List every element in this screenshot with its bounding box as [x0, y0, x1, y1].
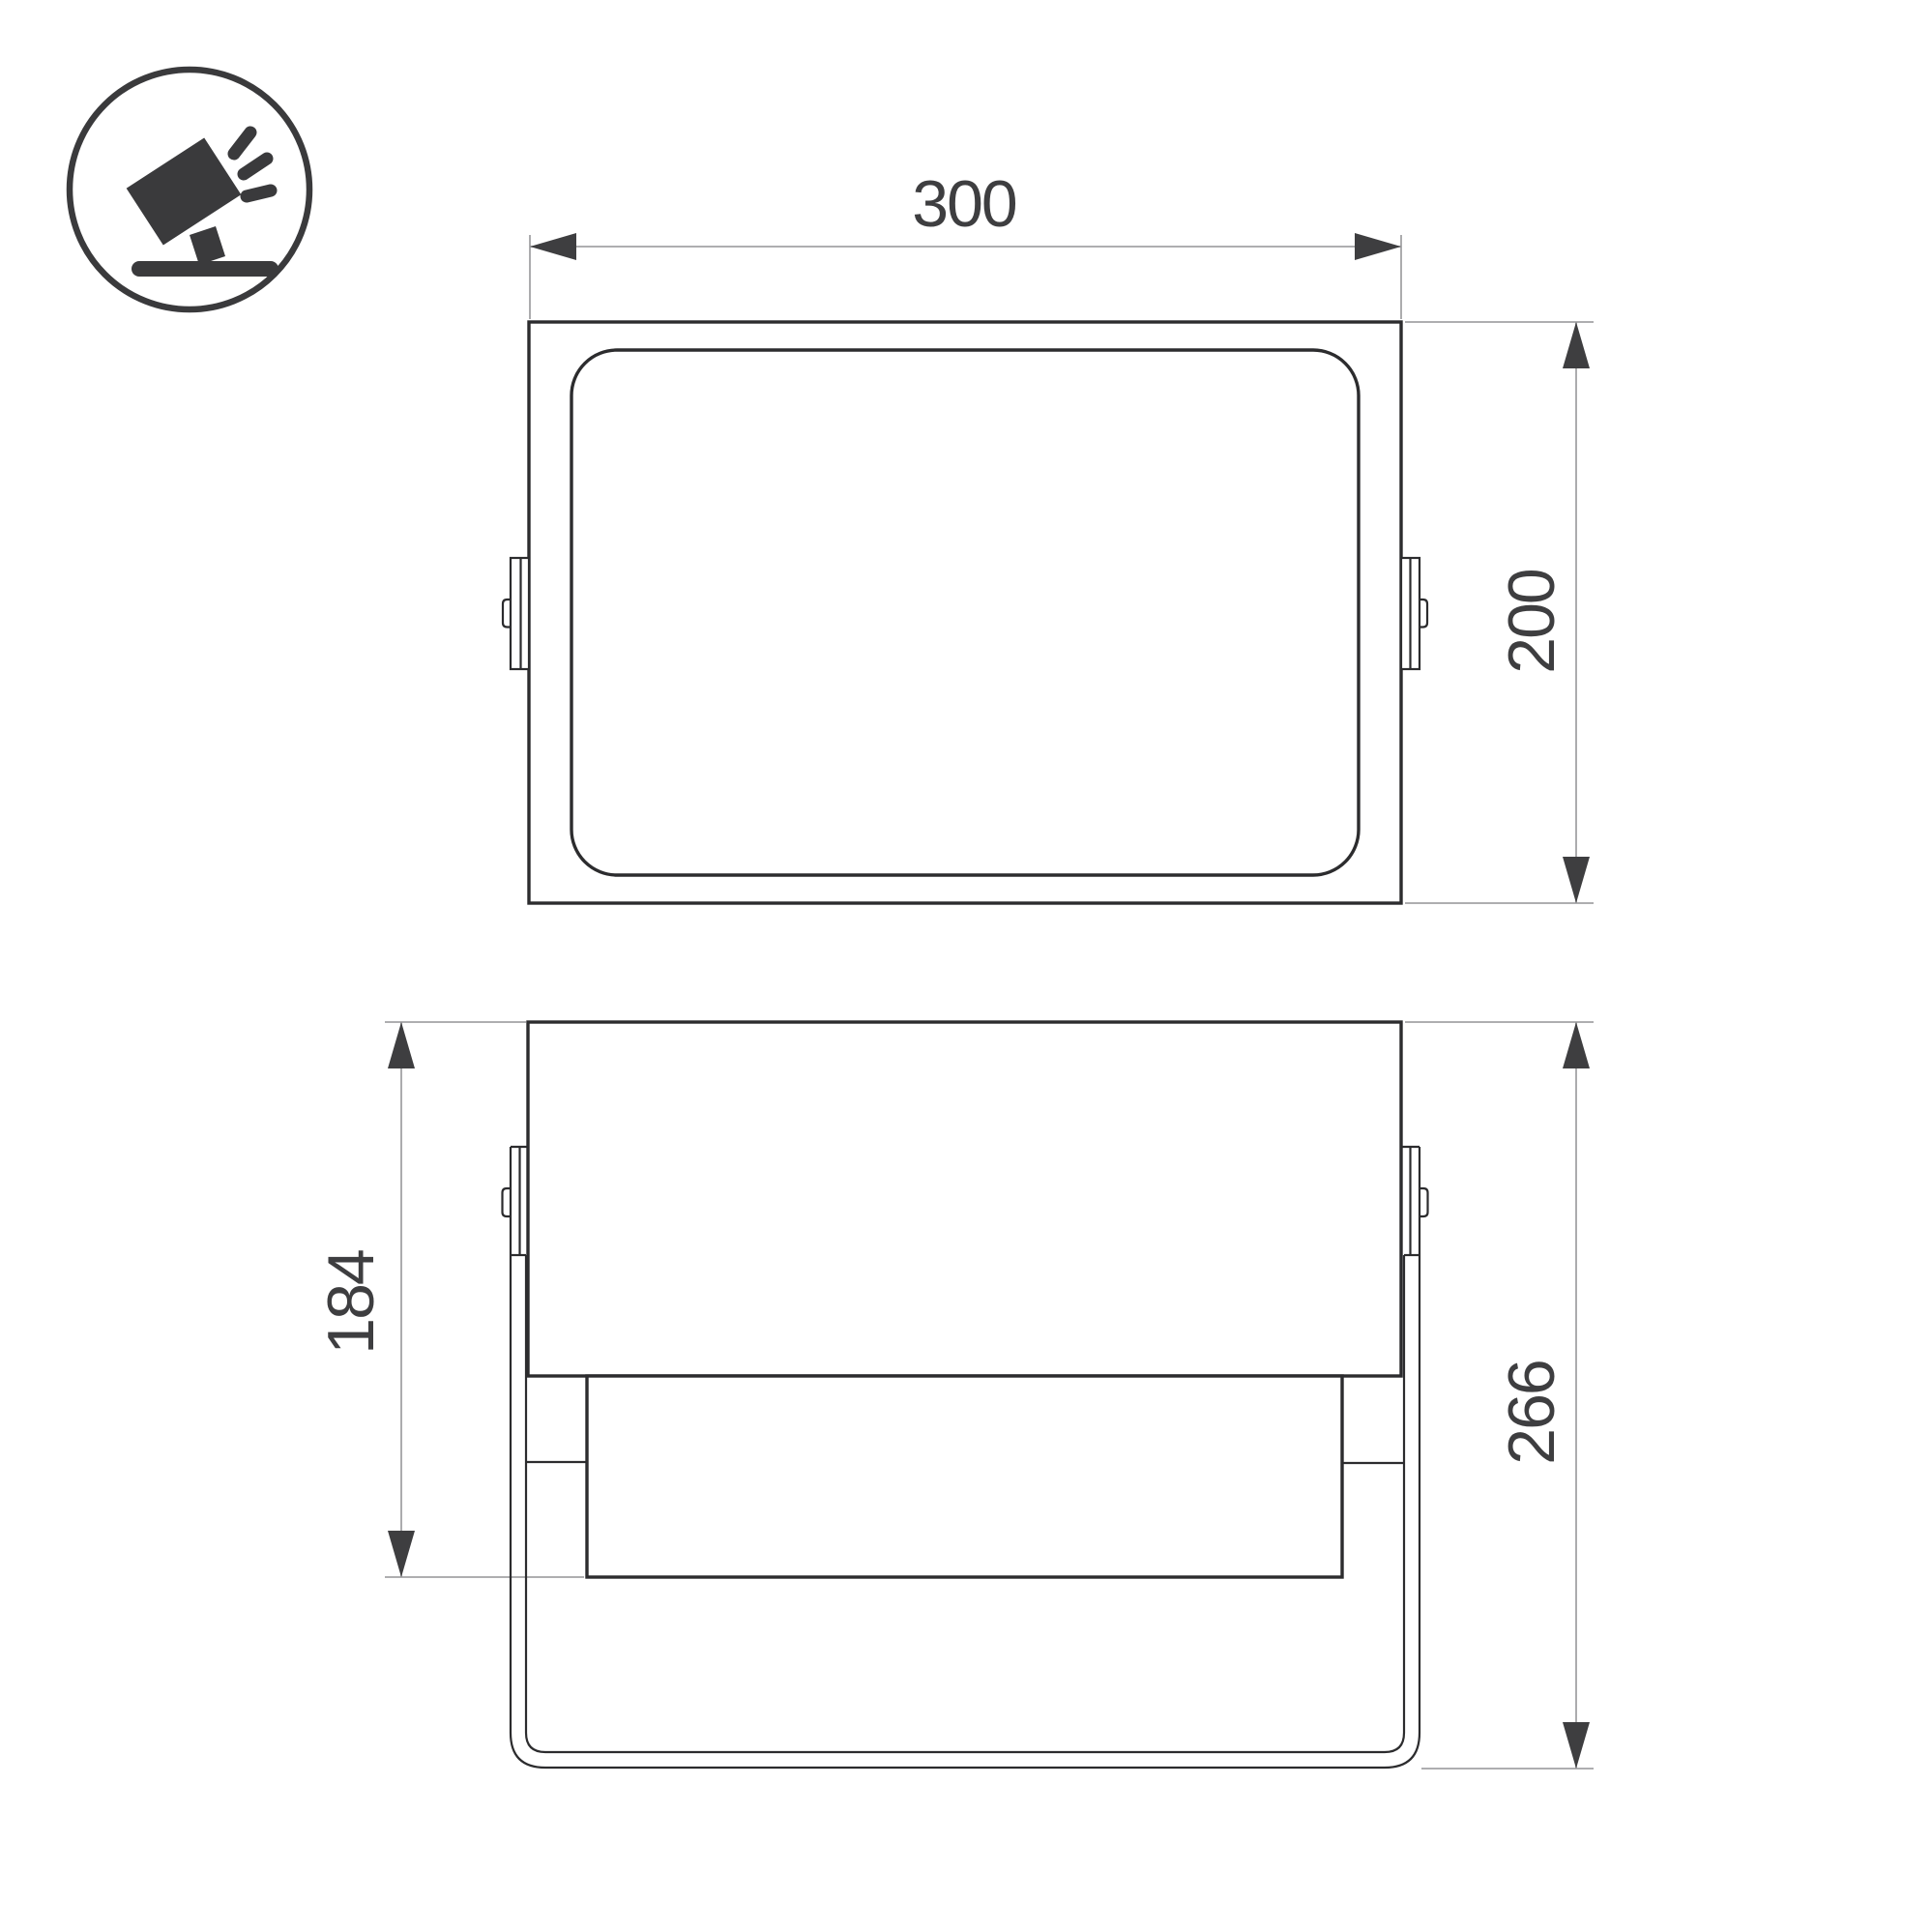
arrowhead-down — [388, 1531, 415, 1577]
side-right-bracket — [1402, 1147, 1428, 1255]
icon-ray-top — [234, 132, 250, 154]
side-lower-section — [587, 1376, 1342, 1577]
arrowhead-up — [388, 1022, 415, 1068]
floodlight-icon — [70, 70, 309, 309]
front-view: 300 200 — [503, 167, 1594, 903]
pivot-knob — [1420, 1188, 1428, 1216]
side-body-outline — [528, 1022, 1401, 1376]
front-housing-outline — [529, 322, 1401, 903]
side-left-bracket — [503, 1147, 529, 1255]
drawing-canvas: 300 200 — [0, 0, 1932, 1931]
front-left-bracket — [503, 558, 529, 669]
icon-lamp-head — [127, 138, 242, 246]
arrowhead-down — [1563, 857, 1590, 903]
arrowhead-left — [530, 233, 576, 260]
dim-label-width: 300 — [912, 167, 1016, 241]
icon-ray-bottom — [247, 190, 271, 196]
dim-label-total-height: 266 — [1495, 1360, 1568, 1464]
front-right-bracket — [1401, 558, 1427, 669]
pivot-knob — [1420, 600, 1427, 628]
arrowhead-up — [1563, 1022, 1590, 1068]
side-view: 184 266 — [314, 1022, 1594, 1769]
pivot-knob — [503, 1188, 512, 1216]
arrowhead-down — [1563, 1722, 1590, 1769]
dim-label-body-height: 184 — [314, 1250, 388, 1355]
icon-ray-middle — [244, 159, 267, 174]
arrowhead-up — [1563, 322, 1590, 368]
arrowhead-right — [1355, 233, 1401, 260]
pivot-knob — [503, 600, 511, 628]
dim-label-height: 200 — [1495, 570, 1568, 674]
icon-lamp-base — [132, 261, 278, 277]
icon-lamp-neck — [190, 226, 225, 265]
